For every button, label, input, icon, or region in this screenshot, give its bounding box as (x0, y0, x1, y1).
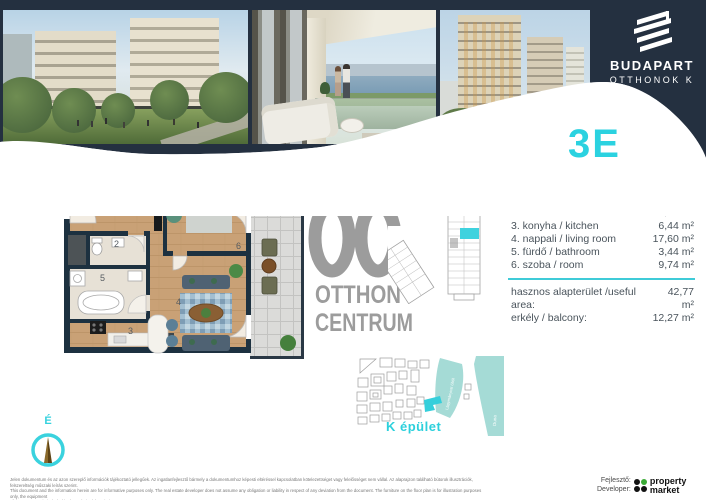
developer-label-en: Developer: (597, 486, 631, 495)
room-row: 4. nappali / living room17,60 m² (511, 233, 694, 246)
desk (148, 315, 168, 353)
far-tower-white (566, 47, 584, 132)
stair-core (450, 238, 458, 248)
disclaimer-line: Jelen dokumentum és az azon szereplő inf… (10, 477, 488, 488)
room-row: 6. szoba / room9,74 m² (511, 259, 694, 272)
shaft (68, 235, 86, 265)
disclaimer-text: Jelen dokumentum és az azon szereplő inf… (10, 477, 488, 500)
highlighted-unit (460, 228, 479, 239)
room-rows: 1. előtér / lobby4,53 m² 2. WC / Toilett… (508, 186, 695, 280)
room-row: 1. előtér / lobby4,53 m² (511, 193, 694, 206)
budapart-logo-icon (623, 8, 681, 56)
plant (275, 183, 289, 197)
plant (280, 335, 296, 351)
svg-text:5: 5 (100, 273, 105, 283)
right-tower (527, 37, 563, 132)
people-silhouettes (77, 120, 79, 126)
photo-buildings-park (3, 10, 248, 144)
svg-text:4: 4 (176, 297, 181, 307)
planter (320, 82, 330, 94)
svg-text:2: 2 (114, 239, 119, 249)
building-label: K épület (386, 419, 441, 434)
apartment-floorplan: 1 2 3 4 5 6 (60, 179, 308, 361)
room-area-table: 1. előtér / lobby4,53 m² 2. WC / Toilett… (508, 186, 695, 326)
developer-brand-line2: market (650, 486, 687, 495)
svg-text:1: 1 (118, 207, 123, 217)
property-market-logo-icon (634, 479, 647, 492)
area-summary: hasznos alapterület /useful area:42,77 m… (508, 280, 695, 326)
brand-subtitle: OTTHONOK K (601, 75, 703, 85)
balcony-floor (250, 181, 304, 359)
summary-row: erkély / balcony:12,27 m² (511, 312, 694, 325)
unit-code-label: 3E (568, 122, 621, 167)
disclaimer-line: This document and the information herein… (10, 488, 488, 499)
north-label: É (44, 414, 51, 427)
tree (150, 80, 189, 120)
river-water (474, 356, 504, 436)
svg-text:3: 3 (128, 326, 133, 336)
room-row: 2. WC / Toilette1,02 m² (511, 206, 694, 219)
summary-row: hasznos alapterület /useful area:42,77 m… (511, 286, 694, 313)
tree (199, 72, 248, 123)
person-man (343, 64, 350, 98)
svg-text:6: 6 (236, 241, 241, 251)
tree (101, 93, 135, 128)
river-label: Duna (492, 415, 497, 426)
room-row: 5. fürdő / bathroom3,44 m² (511, 246, 694, 259)
watermark-line2: CENTRUM (315, 309, 413, 337)
photo-balcony-view (252, 10, 436, 144)
brand-name: BUDAPART (601, 58, 703, 73)
side-table (340, 118, 364, 133)
tree (52, 88, 96, 134)
roof-chevron-icon (328, 171, 377, 187)
developer-label-hu: Fejlesztő: (597, 477, 631, 486)
person-woman (335, 66, 341, 96)
north-compass-icon: É (26, 412, 70, 474)
plant (229, 264, 243, 278)
photo-towers (440, 10, 590, 132)
room-row: 3. konyha / kitchen6,44 m² (511, 220, 694, 233)
round-rug (166, 207, 182, 223)
wardrobe (154, 193, 162, 231)
balcony-floor (362, 133, 436, 144)
greenery (440, 108, 485, 132)
datasheet-page: BUDAPART OTTHONOK K 3E OTTHON CENTRUM (0, 0, 706, 500)
developer-block: Fejlesztő: Developer: property market (597, 477, 686, 494)
brand-block: BUDAPART OTTHONOK K (601, 8, 703, 85)
floor-key-plan (388, 186, 486, 304)
